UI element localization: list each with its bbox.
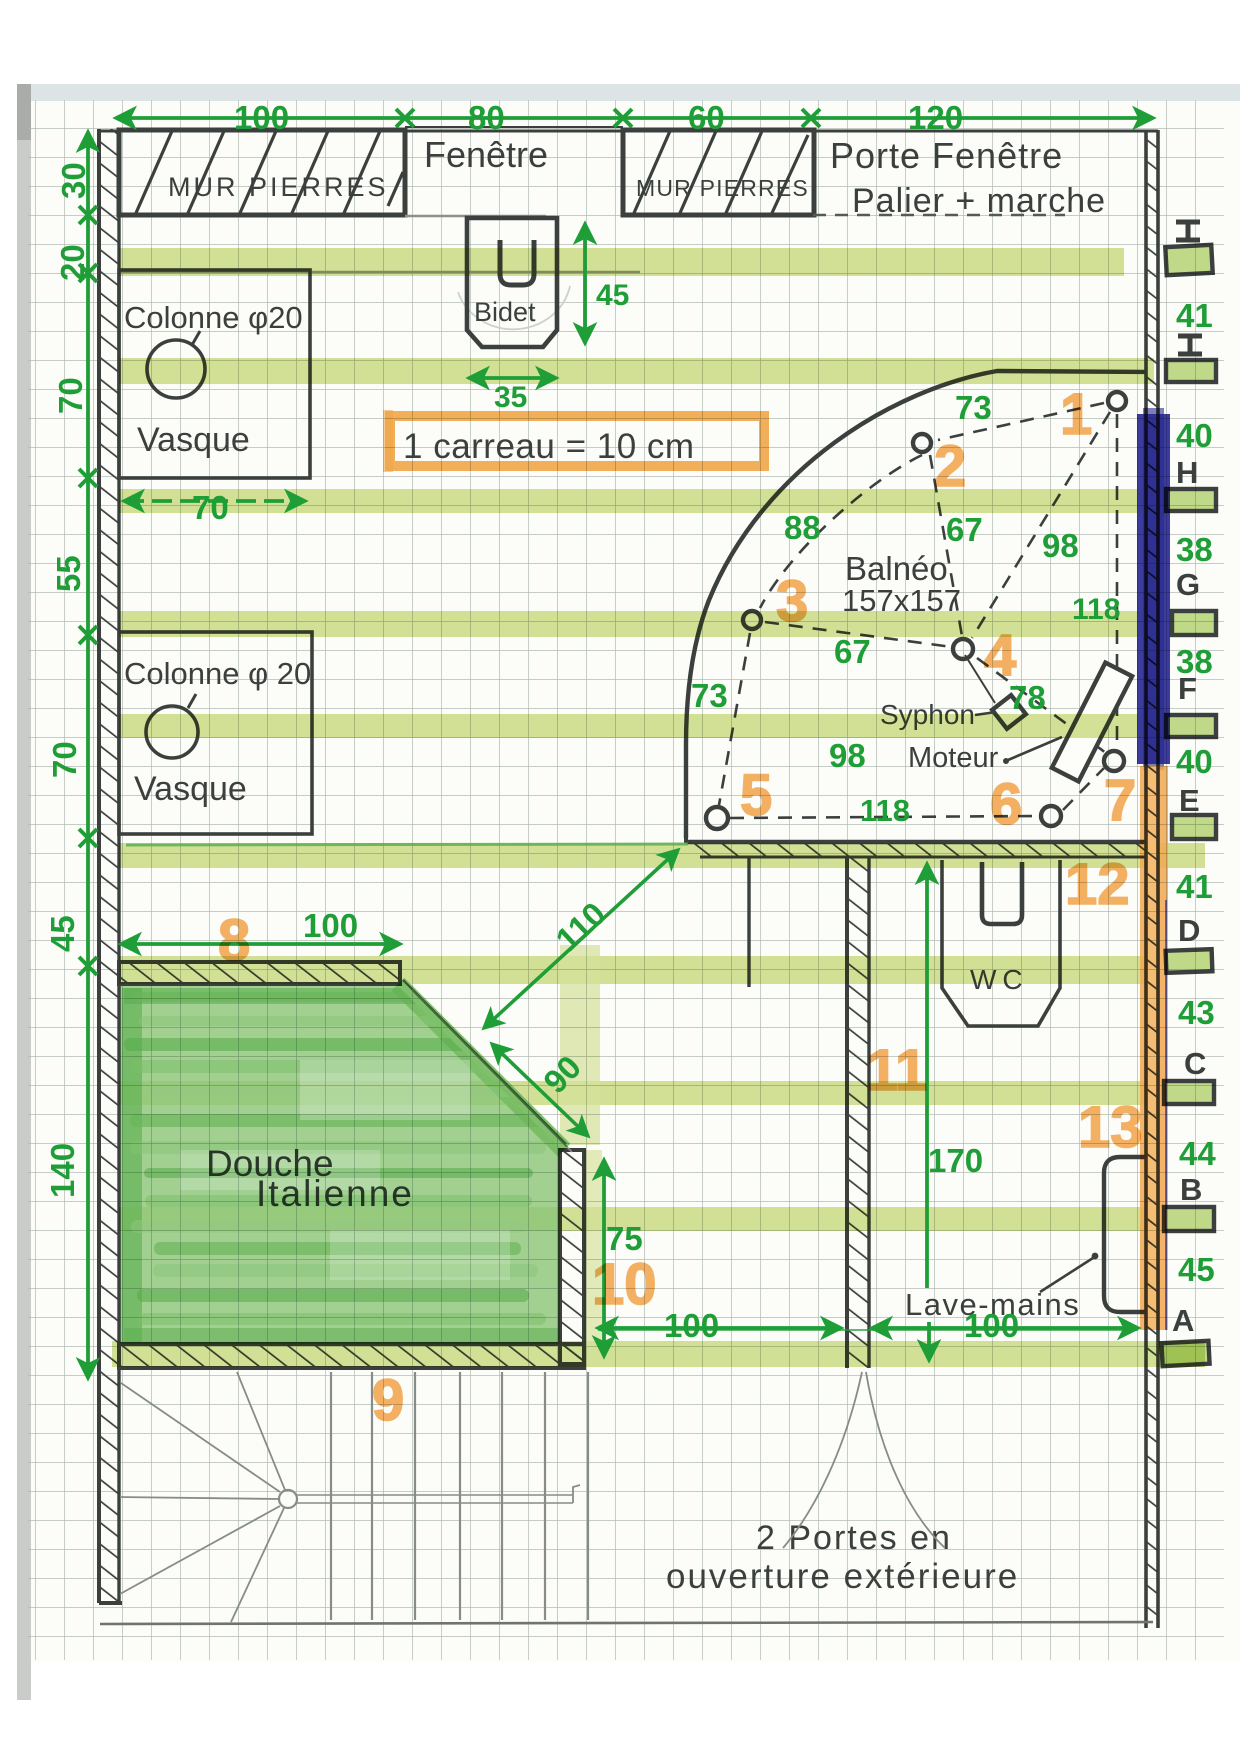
svg-text:170: 170 (928, 1142, 983, 1179)
svg-text:40: 40 (1176, 743, 1213, 780)
svg-text:Fenêtre: Fenêtre (424, 134, 548, 175)
svg-text:1: 1 (1060, 382, 1092, 447)
svg-text:70: 70 (192, 489, 229, 526)
svg-text:10: 10 (592, 1252, 657, 1317)
svg-text:11: 11 (866, 1038, 927, 1103)
svg-text:8: 8 (218, 908, 250, 973)
svg-text:140: 140 (44, 1143, 81, 1198)
svg-text:40: 40 (1176, 417, 1213, 454)
svg-text:38: 38 (1176, 643, 1213, 680)
svg-text:60: 60 (688, 99, 725, 136)
svg-text:A: A (1172, 1303, 1194, 1338)
svg-text:73: 73 (955, 389, 992, 426)
svg-text:41: 41 (1176, 868, 1213, 905)
svg-text:Colonne φ20: Colonne φ20 (124, 300, 303, 335)
svg-text:100: 100 (964, 1307, 1019, 1344)
svg-text:Palier + marche: Palier + marche (852, 182, 1106, 220)
svg-text:Porte Fenêtre: Porte Fenêtre (830, 135, 1063, 176)
svg-text:13: 13 (1078, 1095, 1143, 1160)
svg-text:45: 45 (1178, 1251, 1215, 1288)
svg-text:118: 118 (860, 793, 910, 828)
svg-text:4: 4 (984, 623, 1016, 688)
svg-text:2 Portes en: 2 Portes en (756, 1519, 952, 1557)
svg-text:20: 20 (54, 244, 91, 281)
svg-text:Balnéo: Balnéo (845, 550, 948, 587)
svg-text:Vasque: Vasque (137, 421, 250, 459)
svg-text:100: 100 (664, 1307, 719, 1344)
svg-text:100: 100 (234, 99, 289, 136)
svg-text:Colonne φ 20: Colonne φ 20 (124, 656, 311, 691)
svg-text:88: 88 (784, 509, 821, 546)
svg-text:55: 55 (50, 555, 87, 592)
svg-text:B: B (1180, 1172, 1202, 1207)
svg-text:30: 30 (55, 162, 92, 199)
svg-text:MUR PIERRES: MUR PIERRES (636, 175, 809, 201)
svg-text:41: 41 (1176, 297, 1213, 334)
svg-text:5: 5 (740, 763, 772, 828)
svg-text:Bidet: Bidet (474, 297, 536, 327)
svg-text:45: 45 (596, 279, 629, 312)
svg-text:118: 118 (1072, 593, 1120, 626)
svg-text:67: 67 (946, 511, 983, 548)
svg-text:6: 6 (990, 772, 1022, 837)
svg-text:120: 120 (908, 99, 963, 136)
svg-text:80: 80 (468, 99, 505, 136)
svg-text:MUR PIERRES: MUR PIERRES (168, 172, 389, 202)
svg-text:1 carreau = 10 cm: 1 carreau = 10 cm (403, 427, 695, 466)
svg-text:67: 67 (834, 633, 871, 670)
svg-text:35: 35 (494, 381, 527, 414)
svg-text:2: 2 (934, 434, 966, 499)
svg-text:98: 98 (829, 737, 866, 774)
svg-text:Vasque: Vasque (134, 770, 247, 808)
svg-text:12: 12 (1065, 852, 1130, 917)
svg-text:3: 3 (776, 569, 808, 634)
svg-text:44: 44 (1179, 1135, 1216, 1172)
svg-text:Moteur: Moteur (908, 742, 999, 774)
svg-text:9: 9 (372, 1368, 404, 1433)
svg-text:D: D (1178, 913, 1200, 948)
svg-text:G: G (1176, 567, 1200, 602)
svg-text:38: 38 (1176, 531, 1213, 568)
svg-text:7: 7 (1104, 768, 1136, 833)
svg-text:C: C (1184, 1046, 1206, 1081)
svg-text:70: 70 (52, 377, 89, 414)
svg-text:45: 45 (44, 915, 81, 952)
svg-text:H: H (1176, 455, 1198, 490)
svg-text:ouverture extérieure: ouverture extérieure (666, 1557, 1019, 1596)
svg-text:98: 98 (1042, 527, 1079, 564)
svg-text:100: 100 (303, 907, 358, 944)
svg-text:70: 70 (46, 741, 83, 778)
svg-text:E: E (1179, 783, 1200, 818)
svg-text:43: 43 (1178, 994, 1215, 1031)
svg-text:73: 73 (691, 677, 728, 714)
